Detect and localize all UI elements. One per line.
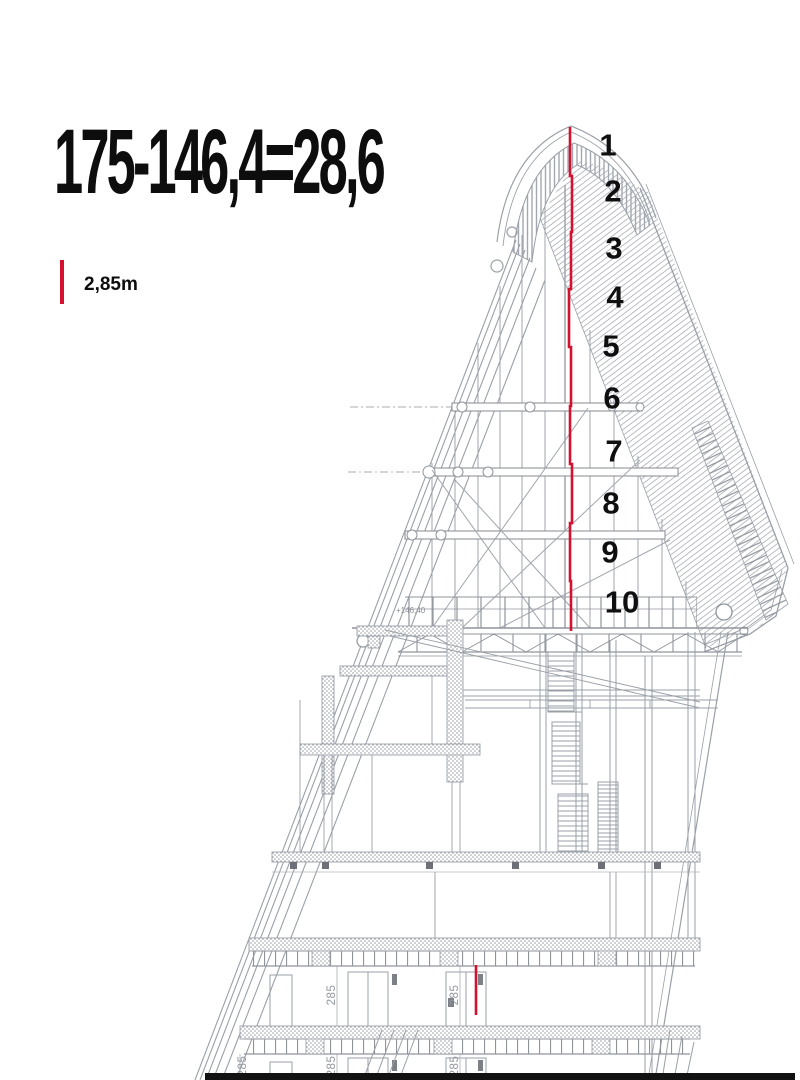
structural-node [716, 604, 732, 620]
dim-label: 285 [326, 985, 338, 1006]
floor-number-1: 1 [599, 130, 616, 161]
floor-number-8: 8 [602, 488, 619, 519]
dim-lines [337, 966, 460, 1028]
floor-number-7: 7 [605, 436, 622, 467]
scale-label: 2,85m [84, 274, 138, 296]
typical-floor-upper [249, 938, 700, 1028]
floor-number-2: 2 [604, 176, 621, 207]
floor-number-9: 9 [601, 537, 618, 568]
floor-number-5: 5 [602, 331, 619, 362]
floor-number-10: 10 [605, 587, 639, 618]
dim-label: 285 [449, 985, 461, 1006]
formula-text: 175-146,4=28,6 [54, 116, 383, 208]
floor-146 [272, 852, 700, 938]
typical-floor-lower [240, 1026, 700, 1080]
architectural-section-page: 175-146,4=28,6 2,85m 1 2 3 4 5 6 7 8 9 1… [0, 0, 800, 1080]
floor-number-3: 3 [605, 233, 622, 264]
bottom-crop-bar [205, 1073, 795, 1080]
floor-number-4: 4 [606, 282, 623, 313]
scale-bar [60, 260, 64, 304]
floor-number-6: 6 [603, 383, 620, 414]
level-annotation: +146,40 [396, 606, 425, 615]
